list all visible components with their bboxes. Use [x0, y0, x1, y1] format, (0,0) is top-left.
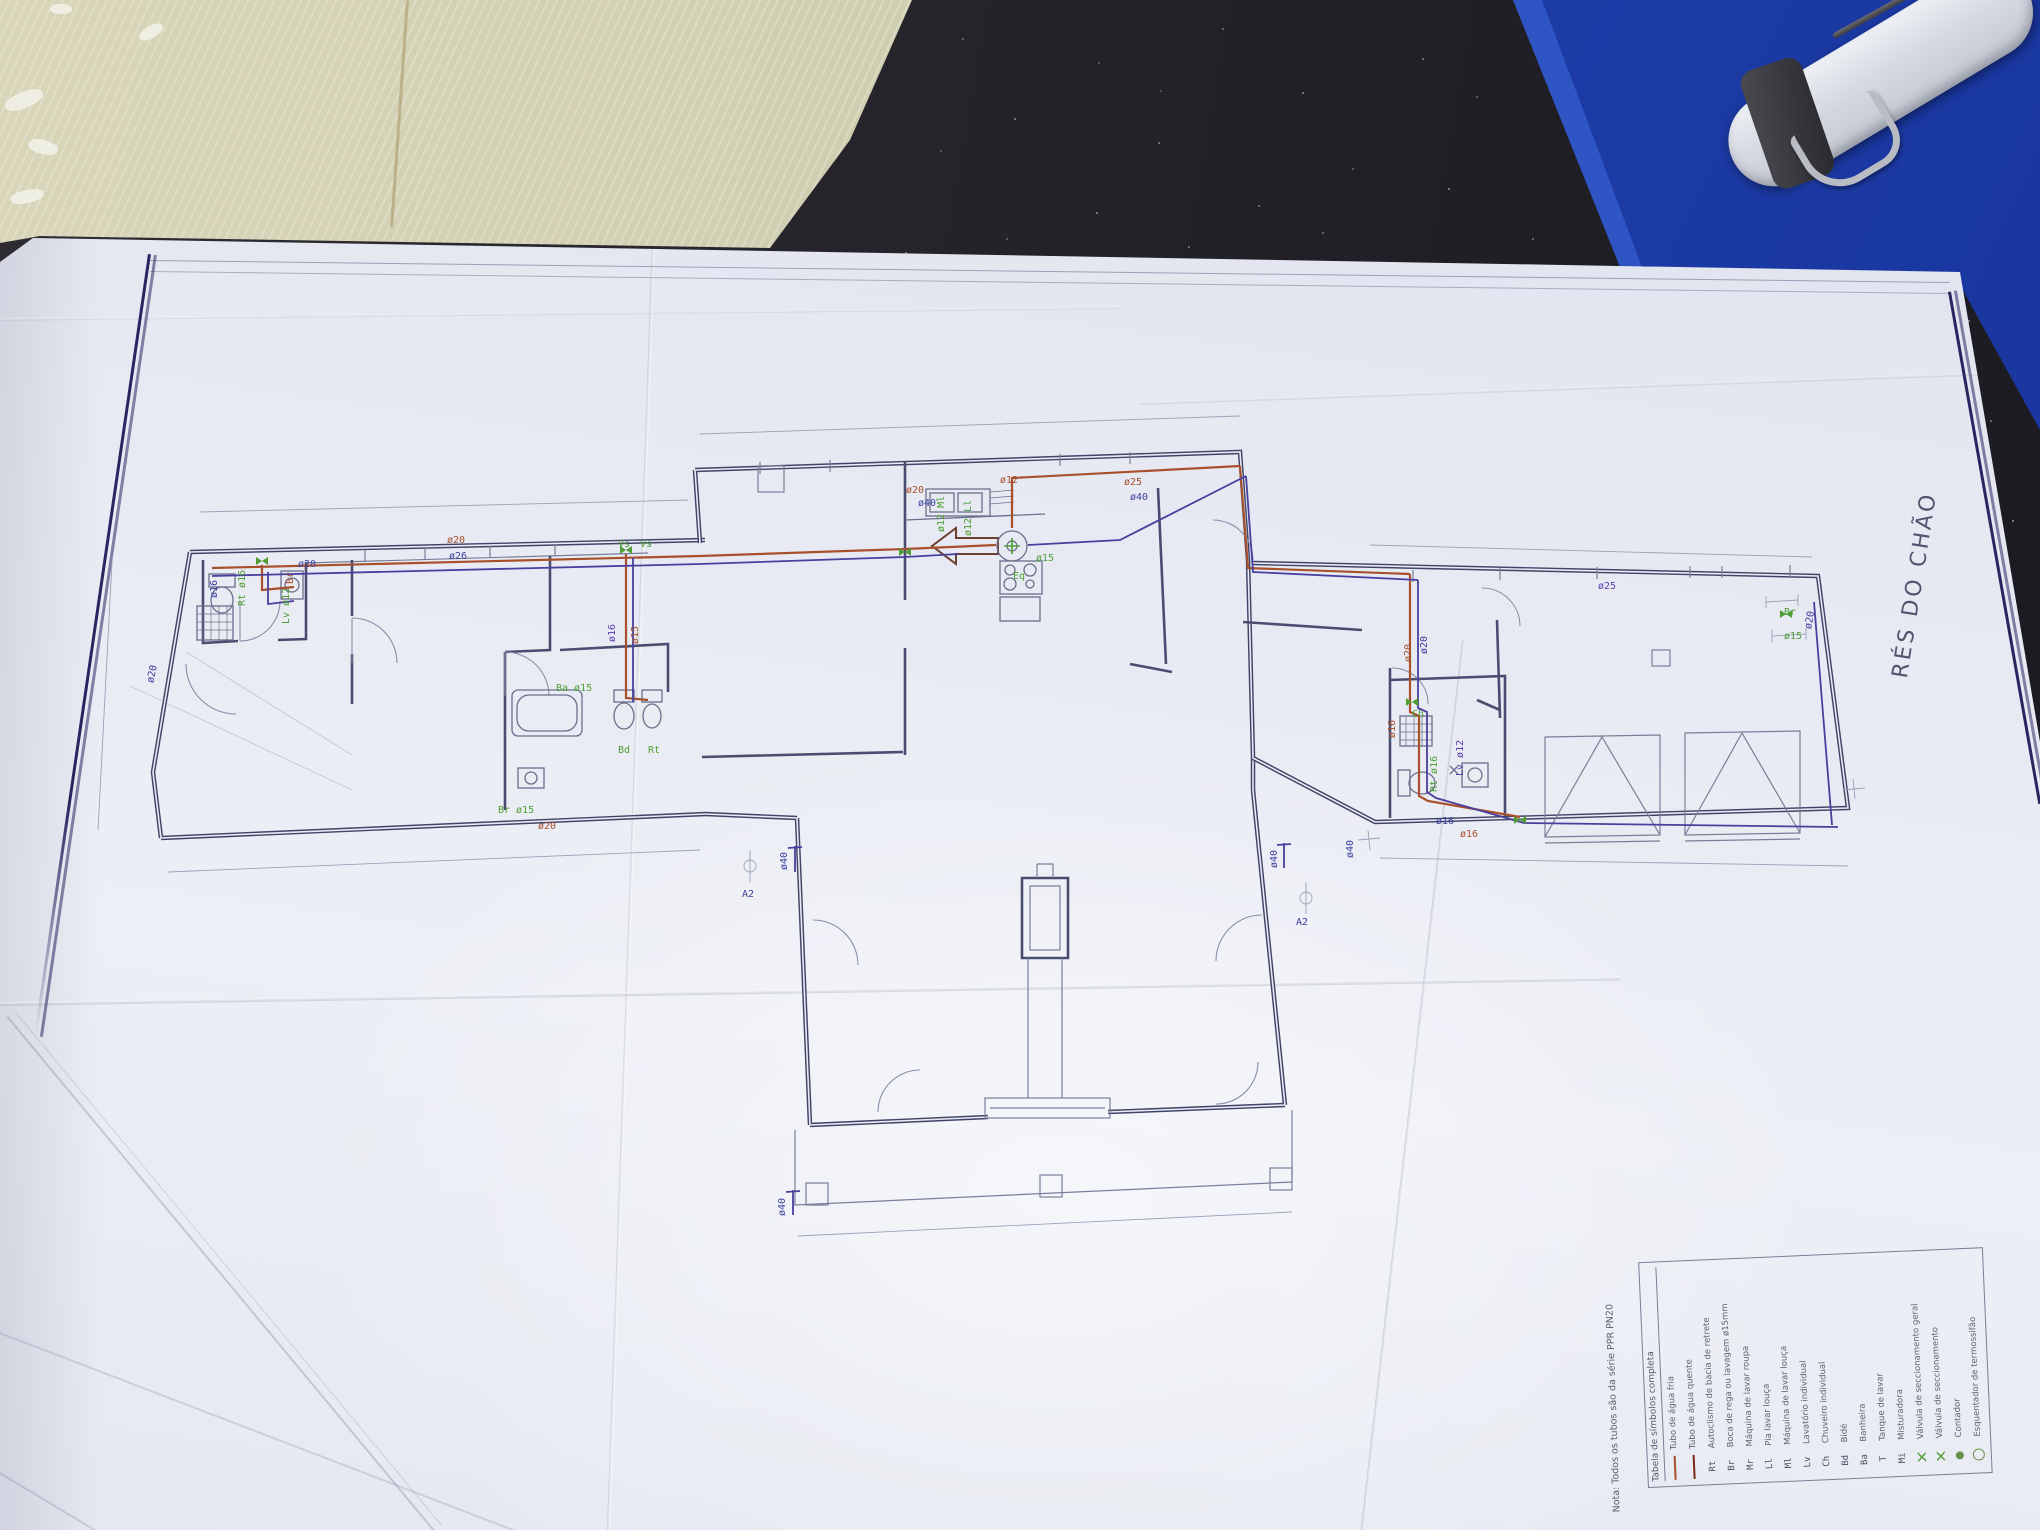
legend-label: Esquentador de termossifão	[1967, 1317, 1982, 1437]
legend-symbol	[1972, 1441, 1985, 1467]
legend-label: Máquina de lavar roupa	[1740, 1346, 1754, 1447]
legend-symbol	[1936, 1443, 1945, 1469]
pipe-label: ø20	[538, 822, 556, 832]
door-arcs	[186, 520, 1520, 1112]
legend-label: Pia lavar louça	[1761, 1383, 1774, 1445]
legend-symbol: Br	[1726, 1452, 1737, 1478]
legend-label: Válvula de seccionamento	[1930, 1327, 1945, 1439]
pipe-label: Br	[286, 572, 296, 584]
pipe-label: ø25	[1598, 582, 1616, 592]
legend-label: Máquina de lavar louça	[1778, 1346, 1792, 1445]
legend-symbol	[1955, 1442, 1964, 1468]
pipe-label: Rt	[648, 746, 660, 756]
legend-label: Tubo de água fria	[1666, 1376, 1679, 1450]
pipe-label: A2	[1296, 918, 1308, 928]
pipe-label: Ch	[1412, 710, 1424, 720]
window-ticks	[365, 452, 1790, 582]
legend-box: Tabela de símbolos completa Tubo de água…	[1638, 1247, 1993, 1488]
legend-symbol: Ba	[1859, 1446, 1870, 1472]
legend-label: Bidé	[1839, 1423, 1850, 1442]
valve-symbols	[256, 546, 1792, 824]
pipe-label: ø12	[1000, 476, 1018, 486]
pipe-label: ø20	[447, 536, 465, 546]
legend-symbol: Mi	[1897, 1445, 1908, 1471]
pipe-label: ø40	[780, 852, 790, 870]
legend-symbol: Ch	[1821, 1448, 1832, 1474]
pipe-label: ø40	[1130, 493, 1148, 503]
pipe-label: ø12 Ll	[964, 500, 974, 536]
legend-label: Válvula de seccionamento geral	[1910, 1303, 1926, 1439]
cardboard-chip	[9, 187, 45, 207]
pipe-label: ø15	[1784, 632, 1802, 642]
pipe-label: Br	[1784, 608, 1796, 618]
legend-label: Autoclismo de bacia de retrete	[1701, 1317, 1717, 1448]
pipe-label: ø20	[1404, 644, 1414, 662]
legend-label: Tanque de lavar	[1875, 1373, 1888, 1441]
pipe-label: ø16	[608, 624, 618, 642]
pipe-label: Bd	[618, 746, 630, 756]
pipe-label: ø20	[906, 486, 924, 496]
pipe-label: ø16	[1388, 720, 1398, 738]
legend-symbol: Rt	[1707, 1453, 1718, 1479]
legend-label: Contador	[1952, 1398, 1964, 1438]
porch-outline	[758, 466, 1670, 1205]
legend-symbol	[1917, 1444, 1926, 1470]
legend-label: Boca de rega ou lavagem ø15mm	[1720, 1303, 1736, 1447]
cardboard-crack	[390, 0, 409, 228]
legend-label: Lavatório individual	[1798, 1360, 1812, 1444]
pipe-label: Br ø15	[498, 806, 534, 816]
photo-scene: ø20ø26VsVsø20ø16Rt ø16Brø20Lv ø12ø16ø15B…	[0, 0, 2040, 1530]
legend-symbol: Ml	[1783, 1450, 1794, 1476]
pipe-label: ø15	[1036, 554, 1054, 564]
legend-symbol: T	[1878, 1445, 1889, 1471]
legend-rows: Tubo de água fria Tubo de água quente Rt…	[1656, 1253, 1988, 1481]
cardboard-chip	[27, 137, 59, 158]
legend-symbol	[1692, 1454, 1695, 1480]
legend-label: Misturadora	[1894, 1389, 1906, 1440]
pipe-label: A2	[742, 890, 754, 900]
pipe-label: ø12 Ml	[937, 496, 947, 532]
pipe-label: ø26	[449, 552, 467, 562]
legend-symbol	[1673, 1455, 1676, 1481]
pipes-hot	[212, 466, 1520, 817]
cardboard-chip	[2, 85, 45, 115]
pipe-label: ø16	[210, 580, 220, 598]
legend-table: Nota: Todos os tubos são da série PPR PN…	[1638, 1247, 1993, 1488]
pipe-label: Rt ø16	[238, 570, 248, 606]
pipe-label: Ba ø15	[556, 684, 592, 694]
pipe-label: Eq	[1013, 572, 1025, 582]
legend-symbol: Mr	[1745, 1451, 1756, 1477]
pipe-label: ø40	[918, 499, 936, 509]
cardboard-chip	[50, 4, 72, 14]
legend-label: Tubo de água quente	[1684, 1359, 1698, 1449]
legend-label: Banheira	[1857, 1403, 1869, 1442]
pipe-label: ø16	[1436, 817, 1454, 827]
pipe-label: ø16	[1460, 830, 1478, 840]
pipe-label: ø40	[1346, 840, 1356, 858]
pipe-label: ø40	[1270, 850, 1280, 868]
bathroom-fixtures	[197, 571, 1488, 796]
pipe-label: ø40	[778, 1198, 788, 1216]
legend-symbol: Lv	[1802, 1449, 1813, 1475]
legend-symbol: Bd	[1840, 1447, 1851, 1473]
pipe-label: Lv ø12	[1456, 740, 1466, 776]
pipe-label: Rt ø16	[1430, 756, 1440, 792]
pipe-label: Vs	[618, 540, 630, 550]
legend-symbol: Ll	[1764, 1450, 1775, 1476]
pipe-label: Vs	[640, 540, 652, 550]
pipe-label: ø25	[1124, 478, 1142, 488]
pipe-label: ø15	[631, 626, 641, 644]
pipe-label: ø20	[298, 560, 316, 570]
legend-label: Chuveiro individual	[1817, 1361, 1831, 1443]
walls-outer	[153, 452, 1848, 1125]
pipes-cold	[212, 476, 1838, 1215]
cardboard-chip	[137, 20, 166, 43]
pipe-label: ø20	[1420, 636, 1430, 654]
pipe-label: Lv ø12	[282, 588, 292, 624]
